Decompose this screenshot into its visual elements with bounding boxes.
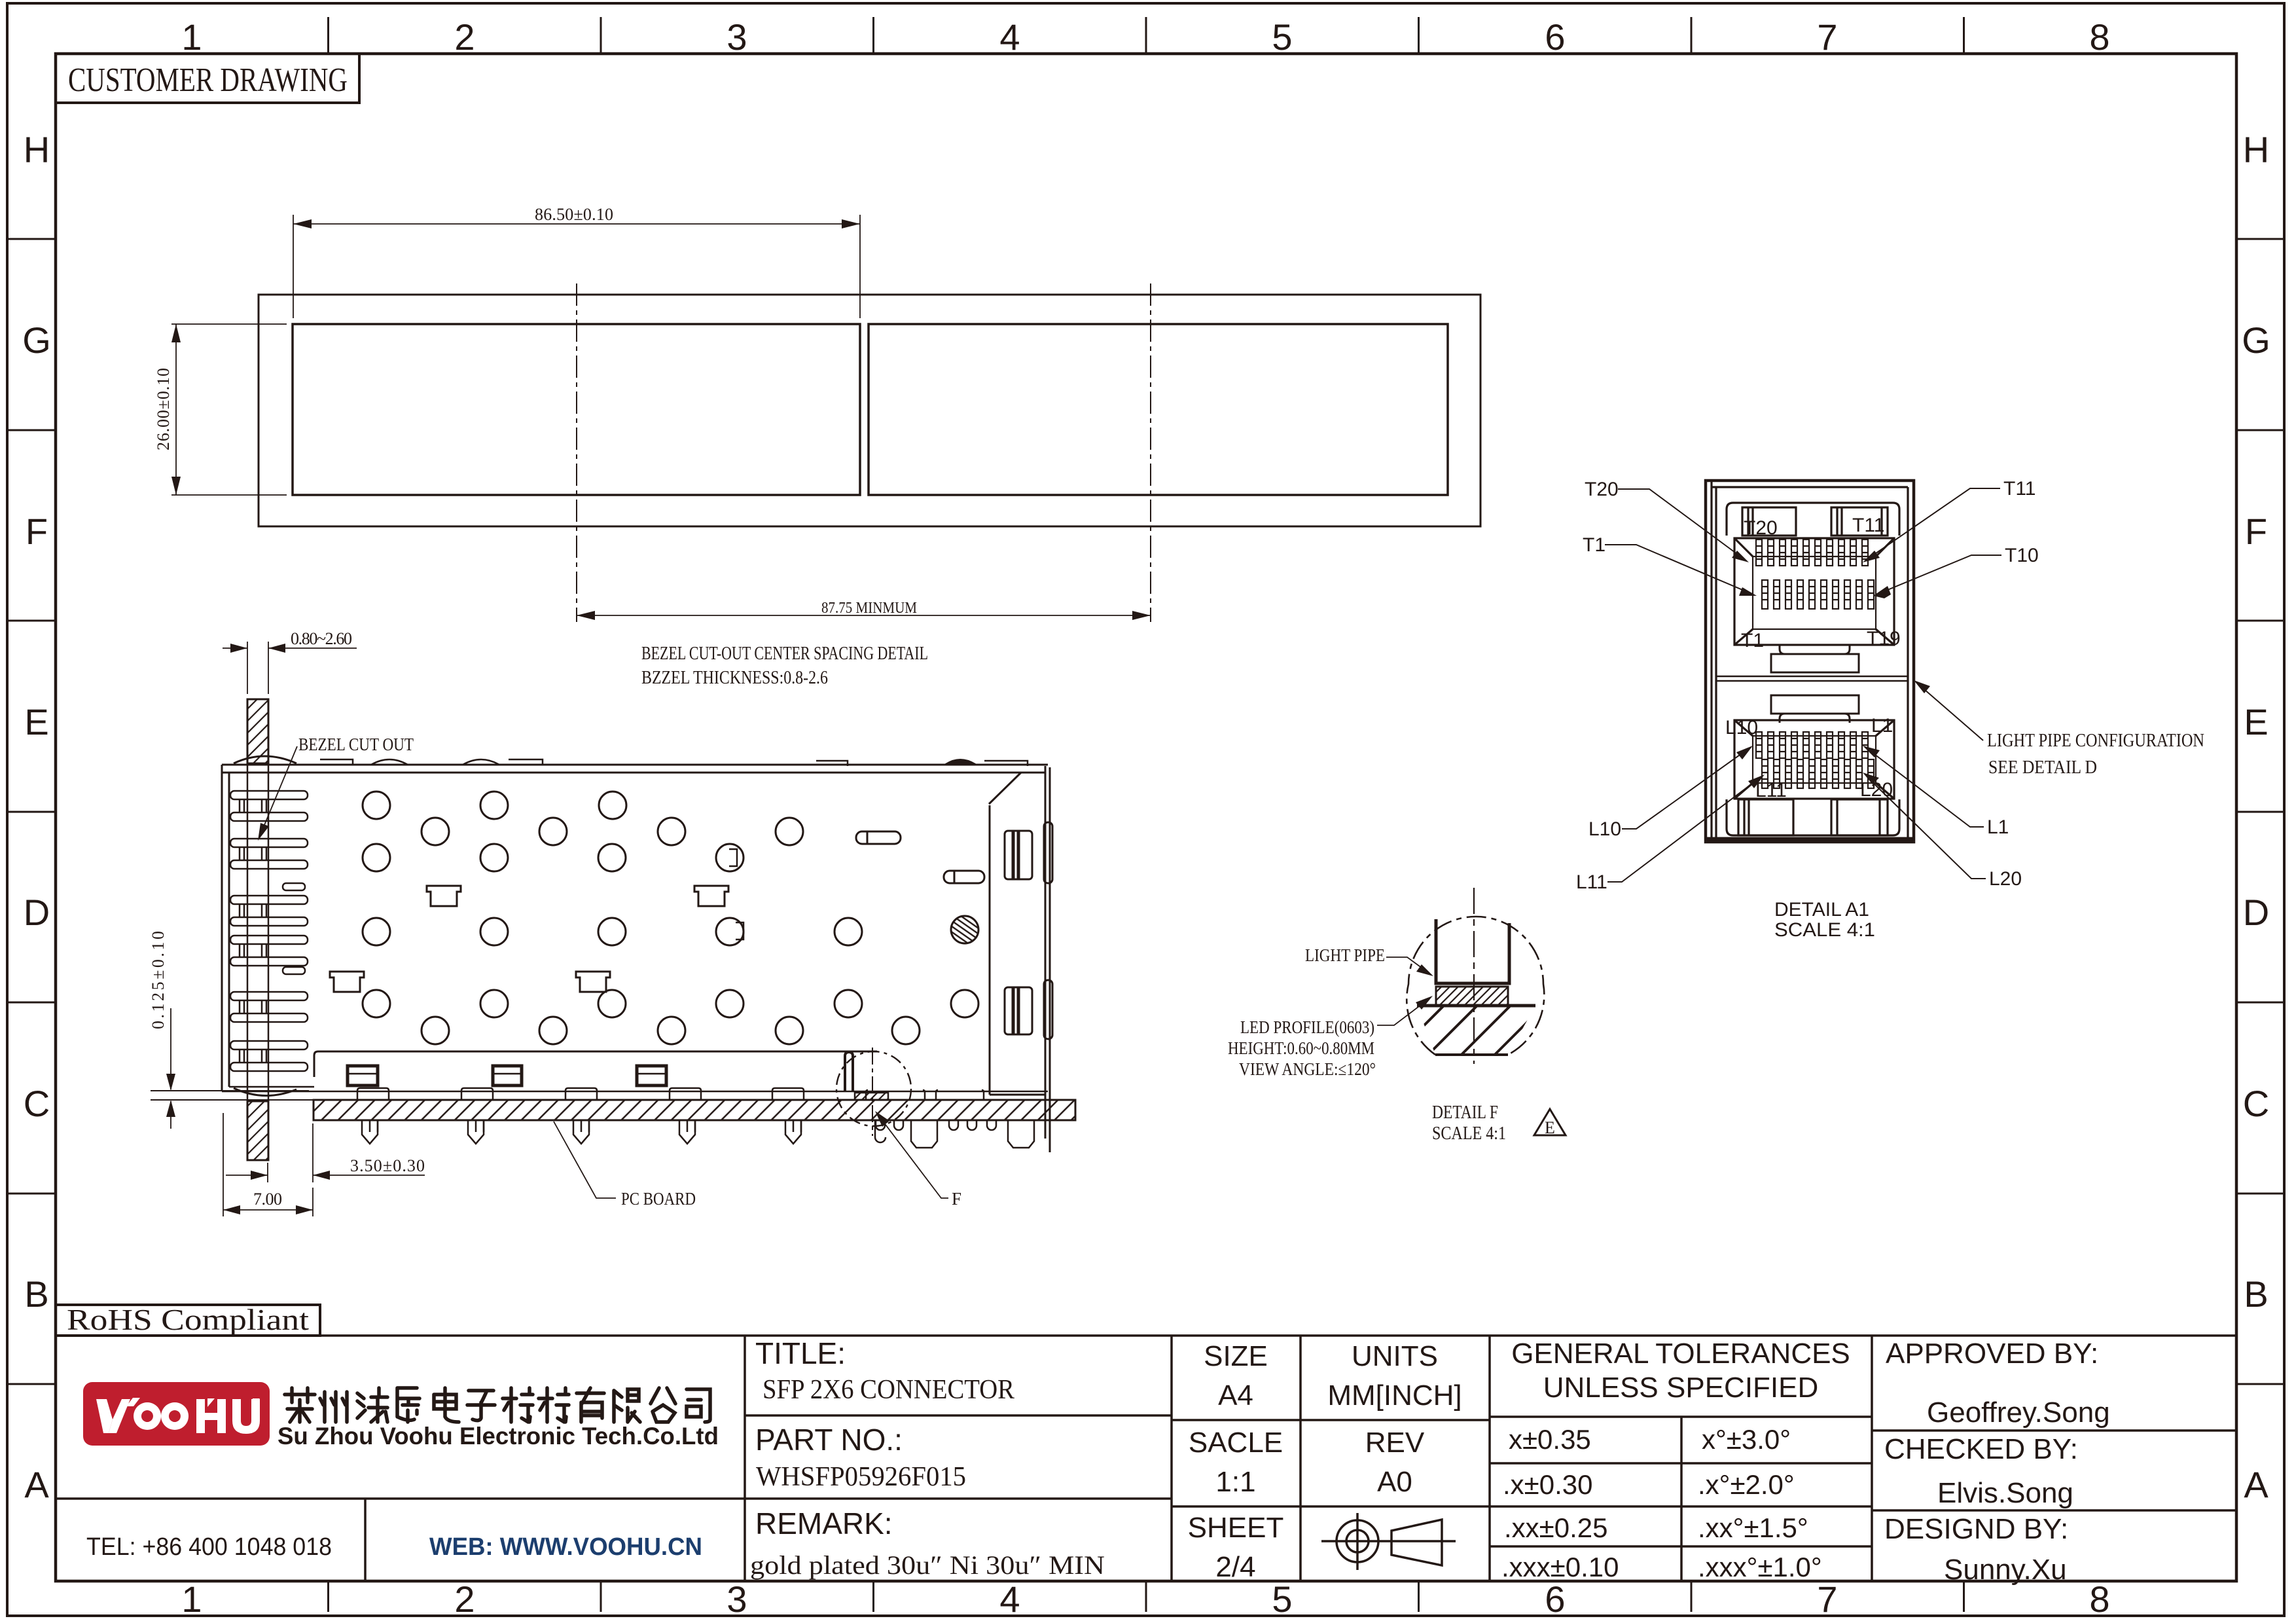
svg-text:RoHS Compliant: RoHS Compliant <box>67 1303 309 1336</box>
svg-text:B: B <box>24 1273 48 1315</box>
svg-text:VIEW ANGLE:≤120°: VIEW ANGLE:≤120° <box>1239 1059 1376 1079</box>
svg-text:6: 6 <box>1545 1578 1565 1620</box>
svg-text:TITLE:: TITLE: <box>755 1336 846 1370</box>
svg-text:H: H <box>24 129 50 170</box>
svg-text:E: E <box>1545 1118 1555 1137</box>
svg-text:gold plated 30u″ Ni 30u″ MIN: gold plated 30u″ Ni 30u″ MIN <box>750 1550 1105 1580</box>
svg-text:1:1: 1:1 <box>1215 1466 1255 1498</box>
svg-text:x±0.35: x±0.35 <box>1509 1424 1591 1455</box>
svg-text:SIZE: SIZE <box>1204 1340 1268 1372</box>
svg-text:3: 3 <box>726 1578 747 1620</box>
svg-text:4: 4 <box>999 16 1020 58</box>
svg-text:T1: T1 <box>1583 534 1605 556</box>
svg-text:E: E <box>2244 701 2268 742</box>
svg-text:G: G <box>22 319 51 361</box>
svg-text:APPROVED BY:: APPROVED BY: <box>1886 1338 2098 1370</box>
svg-text:7: 7 <box>1817 16 1837 58</box>
svg-text:WHSFP05926F015: WHSFP05926F015 <box>756 1462 966 1492</box>
svg-text:LIGHT PIPE: LIGHT PIPE <box>1305 945 1385 965</box>
svg-text:x°±3.0°: x°±3.0° <box>1702 1424 1791 1455</box>
svg-text:REV: REV <box>1365 1427 1425 1459</box>
svg-text:T10: T10 <box>2005 545 2039 566</box>
svg-text:.xx°±1.5°: .xx°±1.5° <box>1698 1512 1808 1543</box>
svg-text:Geoffrey.Song: Geoffrey.Song <box>1927 1396 2110 1429</box>
svg-text:CHECKED BY:: CHECKED BY: <box>1884 1433 2078 1465</box>
svg-text:PC BOARD: PC BOARD <box>621 1189 696 1209</box>
svg-text:Su Zhou Voohu Electronic Tech.: Su Zhou Voohu Electronic Tech.Co.Ltd <box>278 1423 719 1450</box>
svg-text:2: 2 <box>454 16 475 58</box>
svg-text:6: 6 <box>1545 16 1565 58</box>
svg-text:T19: T19 <box>1867 628 1901 649</box>
svg-text:F: F <box>2245 511 2267 552</box>
svg-text:L1: L1 <box>1871 715 1893 737</box>
svg-text:CUSTOMER DRAWING: CUSTOMER DRAWING <box>68 62 348 99</box>
svg-text:L10: L10 <box>1725 717 1758 739</box>
svg-text:C: C <box>24 1083 50 1124</box>
svg-text:3.50±0.30: 3.50±0.30 <box>350 1156 425 1175</box>
svg-text:Sunny.Xu: Sunny.Xu <box>1944 1554 2067 1586</box>
svg-text:Elvis.Song: Elvis.Song <box>1937 1477 2073 1509</box>
svg-text:8: 8 <box>2089 1578 2109 1620</box>
svg-text:REMARK:: REMARK: <box>755 1506 893 1541</box>
svg-text:PART NO.:: PART NO.: <box>755 1423 903 1457</box>
svg-text:.xxx°±1.0°: .xxx°±1.0° <box>1698 1552 1822 1582</box>
svg-text:TEL: +86 400 1048 018: TEL: +86 400 1048 018 <box>86 1533 332 1561</box>
svg-text:MM[INCH]: MM[INCH] <box>1327 1379 1462 1412</box>
svg-text:LIGHT PIPE CONFIGURATION: LIGHT PIPE CONFIGURATION <box>1987 731 2204 751</box>
svg-text:2/4: 2/4 <box>1215 1551 1255 1583</box>
svg-text:2: 2 <box>454 1578 475 1620</box>
svg-text:A: A <box>24 1464 49 1505</box>
svg-text:5: 5 <box>1272 1578 1292 1620</box>
svg-text:T1: T1 <box>1741 630 1764 651</box>
svg-text:7.00: 7.00 <box>253 1190 282 1209</box>
svg-text:1: 1 <box>181 16 202 58</box>
svg-text:L20: L20 <box>1989 868 2022 890</box>
svg-text:LED PROFILE(0603): LED PROFILE(0603) <box>1240 1017 1374 1037</box>
svg-text:BEZEL CUT-OUT CENTER SPACING D: BEZEL CUT-OUT CENTER SPACING DETAIL <box>641 644 928 664</box>
svg-text:4: 4 <box>999 1578 1020 1620</box>
svg-text:T11: T11 <box>2003 478 2036 500</box>
svg-text:86.50±0.10: 86.50±0.10 <box>535 205 613 224</box>
svg-text:26.00±0.10: 26.00±0.10 <box>154 368 173 450</box>
svg-text:8: 8 <box>2089 16 2109 58</box>
svg-text:SCALE 4:1: SCALE 4:1 <box>1774 919 1875 941</box>
svg-text:D: D <box>2243 892 2269 933</box>
svg-text:DETAIL A1: DETAIL A1 <box>1774 899 1869 921</box>
svg-text:.x±0.30: .x±0.30 <box>1503 1469 1592 1500</box>
svg-text:T20: T20 <box>1585 479 1619 500</box>
svg-text:L1: L1 <box>1987 816 2009 838</box>
svg-text:UNITS: UNITS <box>1352 1340 1438 1372</box>
svg-text:SCALE 4:1: SCALE 4:1 <box>1432 1123 1506 1144</box>
svg-text:C: C <box>2243 1083 2269 1124</box>
svg-text:B: B <box>2244 1273 2268 1315</box>
svg-text:L11: L11 <box>1755 780 1787 801</box>
svg-text:T11: T11 <box>1852 515 1884 536</box>
svg-text:SHEET: SHEET <box>1188 1512 1284 1544</box>
svg-text:7: 7 <box>1817 1578 1837 1620</box>
svg-text:T20: T20 <box>1744 517 1778 539</box>
svg-text:DESIGND BY:: DESIGND BY: <box>1884 1513 2068 1545</box>
svg-text:.x°±2.0°: .x°±2.0° <box>1698 1469 1795 1500</box>
svg-text:BEZEL CUT OUT: BEZEL CUT OUT <box>298 735 414 754</box>
svg-text:GENERAL TOLERANCES: GENERAL TOLERANCES <box>1511 1338 1850 1370</box>
svg-text:BZZEL THICKNESS:0.8-2.6: BZZEL THICKNESS:0.8-2.6 <box>641 668 828 688</box>
svg-text:87.75 MINMUM: 87.75 MINMUM <box>821 600 917 617</box>
svg-text:SEE DETAIL D: SEE DETAIL D <box>1988 757 2097 778</box>
svg-text:WEB: WWW.VOOHU.CN: WEB: WWW.VOOHU.CN <box>429 1533 702 1561</box>
svg-text:E: E <box>24 701 48 742</box>
svg-text:SFP 2X6 CONNECTOR: SFP 2X6 CONNECTOR <box>762 1375 1014 1405</box>
svg-text:A: A <box>2244 1464 2269 1505</box>
svg-text:D: D <box>24 892 50 933</box>
svg-text:1: 1 <box>181 1578 202 1620</box>
svg-text:F: F <box>26 511 48 552</box>
svg-text:G: G <box>2242 319 2270 361</box>
svg-text:L11: L11 <box>1576 871 1607 893</box>
svg-text:DETAIL F: DETAIL F <box>1432 1103 1498 1123</box>
svg-text:H: H <box>2243 129 2269 170</box>
svg-text:0.80~2.60: 0.80~2.60 <box>291 629 352 648</box>
svg-text:HEIGHT:0.60~0.80MM: HEIGHT:0.60~0.80MM <box>1228 1038 1374 1058</box>
svg-text:SACLE: SACLE <box>1189 1427 1283 1459</box>
svg-text:.xx±0.25: .xx±0.25 <box>1504 1512 1607 1543</box>
svg-text:F: F <box>952 1189 961 1209</box>
svg-text:A0: A0 <box>1377 1466 1412 1498</box>
svg-text:5: 5 <box>1272 16 1292 58</box>
svg-text:.xxx±0.10: .xxx±0.10 <box>1501 1552 1619 1582</box>
svg-text:3: 3 <box>726 16 747 58</box>
svg-text:UNLESS SPECIFIED: UNLESS SPECIFIED <box>1543 1372 1819 1404</box>
svg-text:L10: L10 <box>1588 818 1621 840</box>
svg-text:A4: A4 <box>1218 1379 1253 1412</box>
